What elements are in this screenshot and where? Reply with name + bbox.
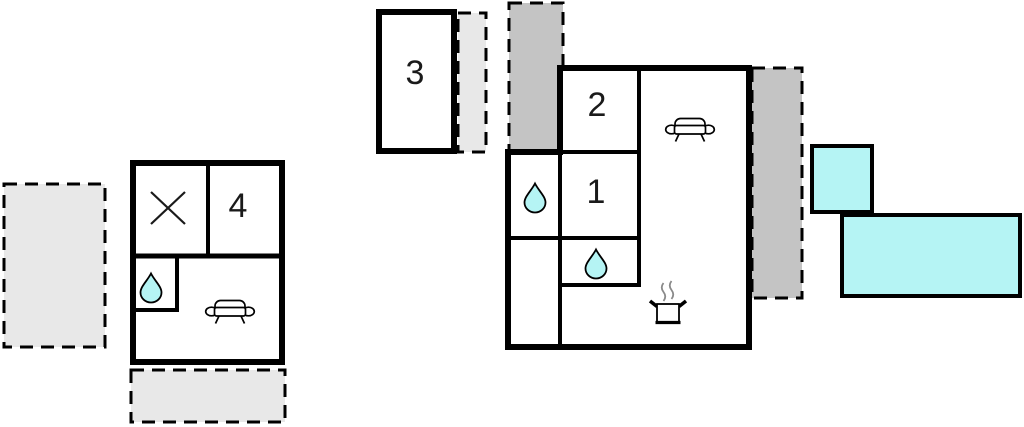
annex-building: 3 [379, 12, 454, 151]
dashed-carport-top [509, 3, 563, 152]
dashed-carport-right [752, 68, 802, 298]
room-3-label: 3 [406, 54, 425, 92]
room-1-label: 1 [587, 173, 606, 211]
dashed-terrace-left [4, 184, 105, 347]
pool-large [842, 215, 1020, 296]
room-2-label: 2 [588, 86, 607, 124]
dashed-terrace-annex [458, 13, 486, 152]
dashed-terrace-below-left-building [131, 370, 285, 422]
floor-plan: 4 3 2 1 [0, 0, 1024, 427]
left-building: 4 [133, 163, 282, 362]
floor-plan-drawing: 4 3 2 1 [0, 0, 1024, 427]
room-4-label: 4 [229, 187, 248, 225]
pool-small [812, 146, 872, 212]
